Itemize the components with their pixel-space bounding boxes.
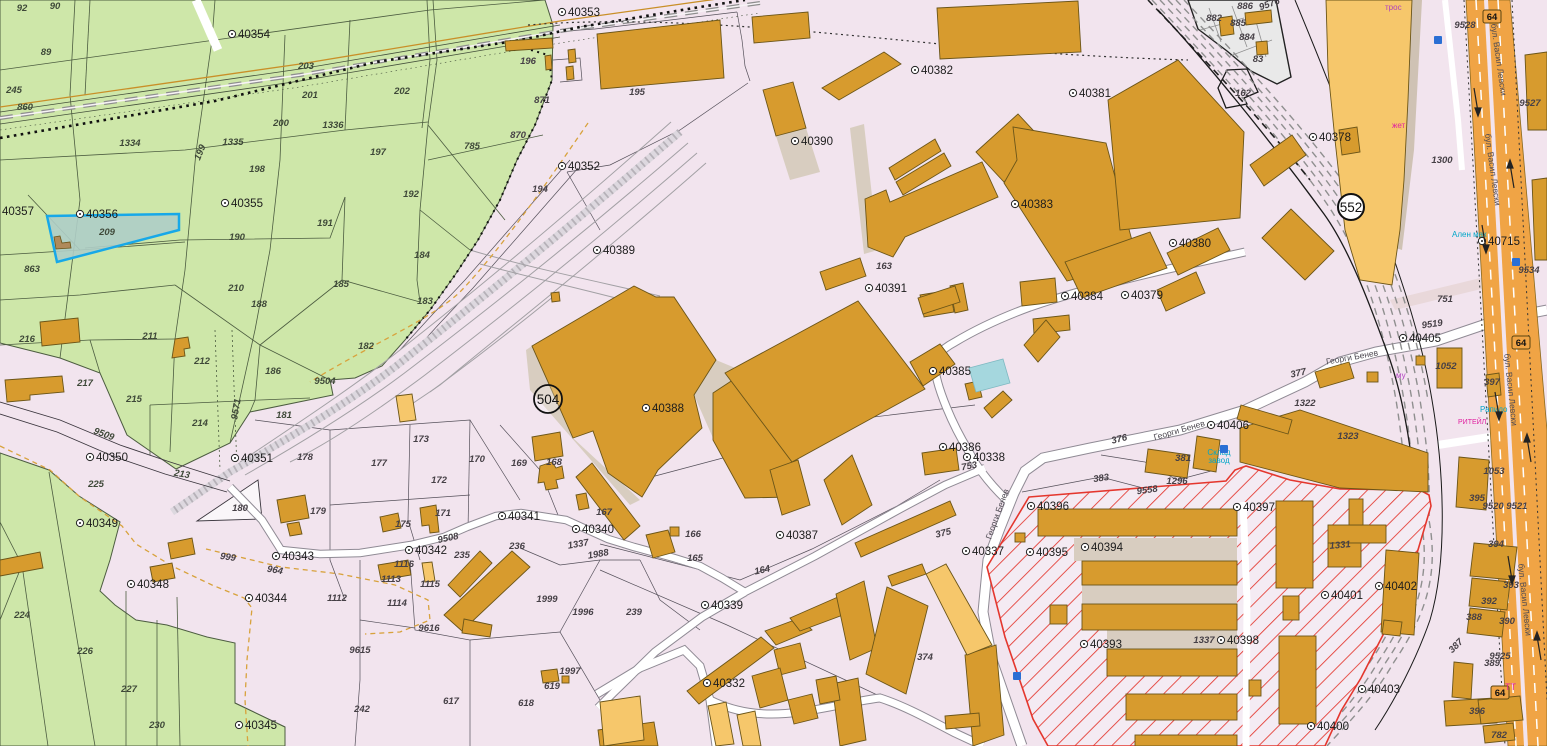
svg-text:392: 392 [1481, 596, 1498, 607]
svg-text:381: 381 [1175, 453, 1191, 464]
svg-text:1337: 1337 [1193, 635, 1215, 646]
svg-text:196: 196 [520, 56, 537, 67]
svg-text:202: 202 [393, 86, 411, 97]
svg-text:178: 178 [297, 452, 314, 463]
svg-text:374: 374 [917, 652, 934, 663]
svg-text:782: 782 [1491, 730, 1508, 741]
svg-text:184: 184 [414, 250, 431, 261]
svg-text:172: 172 [431, 475, 448, 486]
svg-text:40401: 40401 [1331, 590, 1363, 602]
svg-text:40381: 40381 [1079, 88, 1111, 100]
svg-text:40715: 40715 [1488, 236, 1520, 248]
svg-text:863: 863 [24, 264, 41, 275]
svg-text:40378: 40378 [1319, 132, 1351, 144]
svg-text:886: 886 [1237, 1, 1254, 12]
svg-text:194: 194 [532, 184, 549, 195]
svg-text:396: 396 [1469, 706, 1486, 717]
svg-text:870: 870 [510, 130, 527, 141]
svg-text:9520 9521: 9520 9521 [1483, 501, 1528, 512]
svg-text:1114: 1114 [387, 598, 407, 609]
svg-text:190: 190 [229, 232, 246, 243]
svg-text:884: 884 [1239, 32, 1256, 43]
svg-text:40387: 40387 [786, 530, 818, 542]
svg-text:40343: 40343 [282, 551, 314, 563]
svg-text:215: 215 [125, 394, 143, 405]
svg-text:751: 751 [1437, 294, 1453, 305]
svg-text:92: 92 [17, 3, 28, 14]
svg-text:64: 64 [1516, 338, 1527, 349]
svg-text:40355: 40355 [231, 198, 263, 210]
svg-text:40332: 40332 [713, 678, 745, 690]
svg-text:9527: 9527 [1519, 98, 1541, 109]
svg-text:217: 217 [76, 378, 94, 389]
svg-text:871: 871 [534, 95, 550, 106]
svg-text:198: 198 [249, 164, 266, 175]
svg-text:40337: 40337 [972, 546, 1004, 558]
svg-text:1113: 1113 [381, 574, 401, 585]
svg-text:9534: 9534 [1518, 265, 1540, 276]
svg-text:175: 175 [395, 519, 412, 530]
svg-text:390: 390 [1499, 616, 1516, 627]
svg-text:40400: 40400 [1317, 721, 1349, 733]
svg-text:617: 617 [443, 696, 460, 707]
svg-text:166: 166 [685, 529, 702, 540]
svg-text:завод: завод [1208, 456, 1230, 465]
svg-text:170: 170 [469, 454, 486, 465]
svg-text:40403: 40403 [1368, 684, 1400, 696]
svg-text:40382: 40382 [921, 65, 953, 77]
svg-text:40349: 40349 [86, 518, 118, 530]
svg-text:173: 173 [413, 434, 430, 445]
svg-text:188: 188 [251, 299, 268, 310]
svg-text:трос: трос [1385, 3, 1402, 12]
svg-text:9504: 9504 [314, 376, 336, 387]
svg-text:40380: 40380 [1179, 238, 1211, 250]
svg-text:40384: 40384 [1071, 291, 1104, 303]
svg-text:40345: 40345 [245, 720, 277, 732]
svg-text:200: 200 [272, 118, 290, 129]
svg-text:180: 180 [232, 503, 249, 514]
svg-text:186: 186 [265, 366, 282, 377]
svg-text:197: 197 [370, 147, 387, 158]
svg-text:64: 64 [1487, 12, 1498, 23]
svg-text:40405: 40405 [1409, 333, 1441, 345]
svg-text:227: 227 [120, 684, 138, 695]
svg-text:Ален мак: Ален мак [1452, 230, 1487, 239]
svg-text:1115: 1115 [420, 579, 440, 590]
svg-text:9525: 9525 [1489, 651, 1511, 662]
svg-text:40394: 40394 [1091, 542, 1124, 554]
svg-text:860: 860 [17, 102, 34, 113]
svg-text:168: 168 [546, 457, 563, 468]
svg-text:552: 552 [1340, 200, 1363, 215]
svg-text:882: 882 [1206, 13, 1223, 24]
svg-text:40395: 40395 [1036, 547, 1068, 559]
svg-text:179: 179 [310, 506, 327, 517]
svg-text:195: 195 [629, 87, 646, 98]
svg-text:162: 162 [1235, 88, 1252, 99]
svg-text:999: 999 [219, 551, 237, 564]
svg-text:225: 225 [87, 479, 105, 490]
svg-text:9528: 9528 [1454, 20, 1476, 31]
svg-text:230: 230 [148, 720, 166, 731]
svg-text:236: 236 [508, 541, 526, 552]
svg-text:40379: 40379 [1131, 290, 1163, 302]
svg-text:211: 211 [141, 331, 157, 342]
svg-text:40348: 40348 [137, 579, 169, 591]
svg-text:40339: 40339 [711, 600, 743, 612]
svg-text:40390: 40390 [801, 136, 833, 148]
svg-text:40398: 40398 [1227, 635, 1259, 647]
svg-text:90: 90 [50, 1, 61, 12]
svg-text:40388: 40388 [652, 403, 684, 415]
svg-text:163: 163 [876, 261, 893, 272]
svg-text:1323: 1323 [1337, 431, 1359, 442]
svg-text:167: 167 [596, 507, 613, 518]
svg-text:40389: 40389 [603, 245, 635, 257]
svg-text:1296: 1296 [1166, 476, 1188, 487]
svg-text:40383: 40383 [1021, 199, 1053, 211]
svg-text:171: 171 [435, 508, 451, 519]
svg-text:1300: 1300 [1431, 155, 1453, 166]
svg-text:40356: 40356 [86, 209, 118, 221]
svg-text:40393: 40393 [1090, 639, 1122, 651]
svg-text:1053: 1053 [1483, 466, 1505, 477]
svg-text:40391: 40391 [875, 283, 907, 295]
svg-text:216: 216 [18, 334, 36, 345]
svg-text:жет: жет [1392, 121, 1406, 130]
svg-text:504: 504 [537, 392, 560, 407]
svg-text:182: 182 [358, 341, 375, 352]
svg-text:40342: 40342 [415, 545, 447, 557]
svg-text:40353: 40353 [568, 7, 600, 19]
svg-text:89: 89 [41, 47, 52, 58]
svg-text:1116: 1116 [394, 559, 414, 570]
svg-text:1112: 1112 [327, 593, 347, 604]
svg-text:203: 203 [297, 61, 315, 72]
svg-text:183: 183 [417, 296, 434, 307]
svg-text:му: му [1396, 371, 1406, 380]
svg-text:1335: 1335 [222, 137, 244, 148]
svg-text:235: 235 [453, 550, 471, 561]
svg-text:83: 83 [1253, 54, 1264, 65]
svg-text:224: 224 [13, 610, 31, 621]
svg-text:1334: 1334 [119, 138, 141, 149]
svg-text:ТТ: ТТ [1505, 682, 1516, 692]
svg-text:618: 618 [518, 698, 535, 709]
svg-text:1322: 1322 [1294, 398, 1316, 409]
svg-text:210: 210 [227, 283, 245, 294]
svg-text:9615: 9615 [349, 645, 371, 656]
svg-text:214: 214 [191, 418, 209, 429]
svg-text:40357: 40357 [2, 206, 34, 218]
svg-text:40350: 40350 [96, 452, 128, 464]
svg-text:185: 185 [333, 279, 350, 290]
svg-text:191: 191 [317, 218, 333, 229]
svg-text:394: 394 [1488, 539, 1505, 550]
svg-text:40340: 40340 [582, 524, 614, 536]
svg-text:619: 619 [544, 681, 561, 692]
svg-text:245: 245 [5, 85, 23, 96]
svg-text:1052: 1052 [1435, 361, 1457, 372]
svg-text:1997: 1997 [559, 666, 581, 677]
svg-text:Рапидо: Рапидо [1480, 405, 1508, 414]
svg-text:РИТЕЙЛ: РИТЕЙЛ [1458, 417, 1487, 426]
svg-text:397: 397 [1484, 377, 1501, 388]
svg-text:785: 785 [464, 141, 481, 152]
svg-text:383: 383 [1093, 472, 1111, 485]
svg-text:40341: 40341 [508, 511, 540, 523]
svg-text:209: 209 [98, 227, 116, 238]
svg-text:212: 212 [193, 356, 211, 367]
svg-text:242: 242 [353, 704, 371, 715]
svg-text:388: 388 [1466, 612, 1483, 623]
svg-text:40352: 40352 [568, 161, 600, 173]
svg-text:239: 239 [625, 607, 643, 618]
svg-text:192: 192 [403, 189, 420, 200]
svg-text:169: 169 [511, 458, 528, 469]
svg-text:177: 177 [371, 458, 388, 469]
svg-text:40397: 40397 [1243, 502, 1275, 514]
svg-text:181: 181 [276, 410, 292, 421]
svg-text:165: 165 [687, 553, 704, 564]
svg-text:40344: 40344 [255, 593, 288, 605]
svg-text:1336: 1336 [322, 120, 344, 131]
svg-text:1999: 1999 [536, 594, 558, 605]
svg-text:40351: 40351 [241, 453, 273, 465]
svg-text:40396: 40396 [1037, 501, 1069, 513]
svg-text:201: 201 [301, 90, 318, 101]
svg-text:40406: 40406 [1217, 420, 1249, 432]
svg-text:1331: 1331 [1329, 539, 1351, 552]
svg-text:9616: 9616 [418, 623, 440, 634]
svg-text:40354: 40354 [238, 29, 271, 41]
svg-text:1996: 1996 [572, 607, 594, 618]
svg-text:40385: 40385 [939, 366, 971, 378]
svg-text:226: 226 [76, 646, 94, 657]
svg-text:40402: 40402 [1385, 581, 1417, 593]
svg-text:885: 885 [1230, 18, 1247, 29]
svg-text:40338: 40338 [973, 452, 1005, 464]
